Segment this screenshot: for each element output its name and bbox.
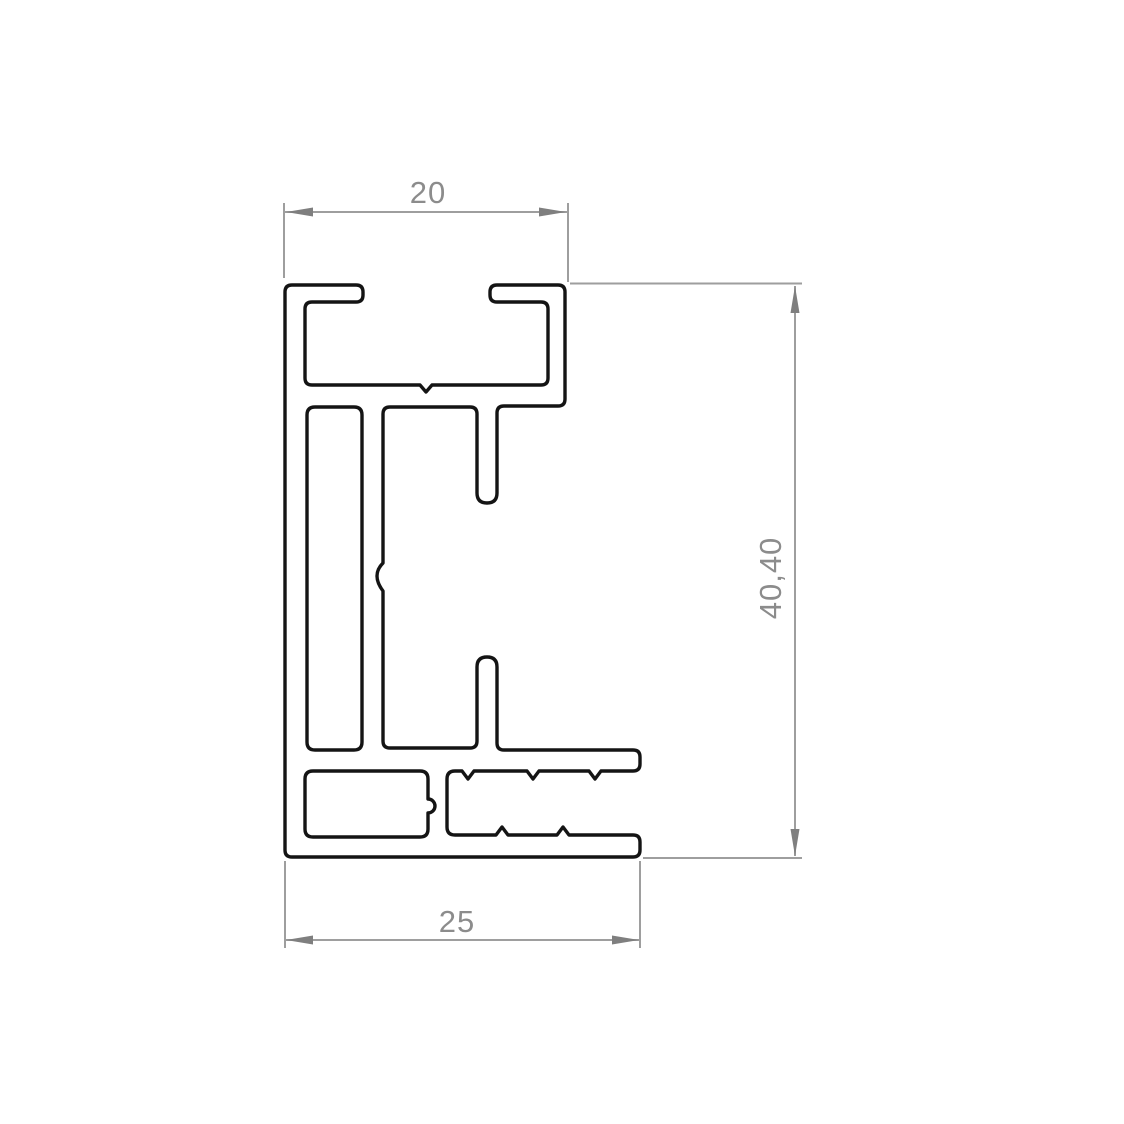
overall-height-value: 40,40 bbox=[753, 537, 788, 620]
bottom-width-value: 25 bbox=[439, 904, 475, 939]
top-width-value: 20 bbox=[410, 175, 446, 210]
profile-hole-left-slot bbox=[307, 407, 362, 750]
height-dim-arrow-bottom bbox=[791, 829, 800, 856]
height-dim-arrow-top bbox=[791, 286, 800, 313]
profile-layer bbox=[285, 285, 640, 857]
drawing-canvas: 20 25 40,40 bbox=[0, 0, 1124, 1124]
top-dim-arrow-right bbox=[539, 208, 566, 217]
dimension-text-layer: 20 25 40,40 bbox=[410, 175, 788, 939]
profile-technical-drawing: 20 25 40,40 bbox=[0, 0, 1124, 1124]
profile-hole-bottom-chamber bbox=[305, 771, 435, 837]
bottom-dim-arrow-right bbox=[612, 936, 639, 945]
top-dim-arrow-left bbox=[286, 208, 313, 217]
bottom-dim-arrow-left bbox=[286, 936, 313, 945]
